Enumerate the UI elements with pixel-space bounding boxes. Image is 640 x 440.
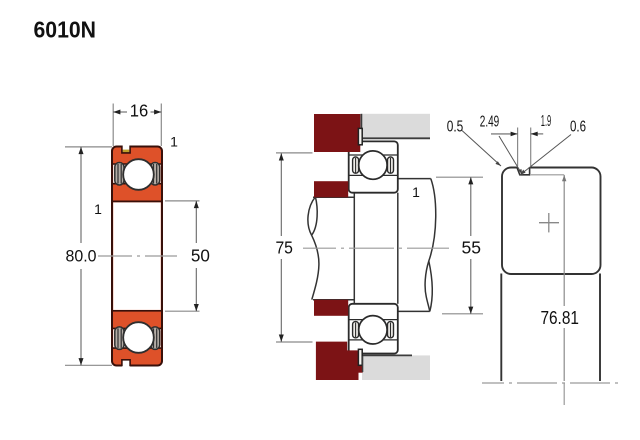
svg-text:55: 55: [462, 238, 482, 258]
svg-text:0.6: 0.6: [570, 119, 586, 136]
svg-text:75: 75: [275, 238, 293, 258]
svg-text:6010N: 6010N: [34, 17, 97, 43]
svg-text:1: 1: [170, 134, 178, 150]
svg-text:1: 1: [94, 201, 102, 217]
svg-text:1.9: 1.9: [541, 113, 552, 130]
svg-text:76.81: 76.81: [540, 308, 579, 328]
svg-text:80.0: 80.0: [66, 248, 97, 266]
svg-text:16: 16: [130, 101, 149, 121]
svg-text:1: 1: [412, 184, 420, 200]
svg-text:0.5: 0.5: [447, 119, 464, 136]
svg-text:2.49: 2.49: [480, 114, 500, 131]
svg-text:50: 50: [191, 246, 210, 266]
